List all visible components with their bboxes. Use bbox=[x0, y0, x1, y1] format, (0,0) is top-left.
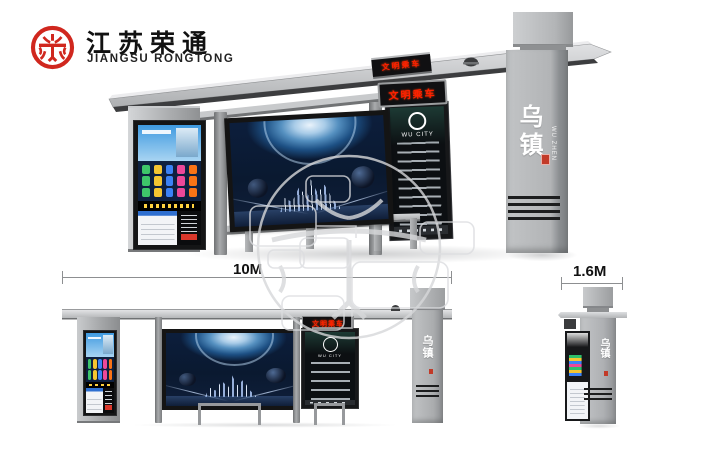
pillar-name-chinese: 乌镇 bbox=[514, 104, 544, 182]
side-shadow bbox=[568, 422, 630, 430]
brand-emblem-icon bbox=[30, 25, 75, 70]
front-dimension-line bbox=[62, 277, 452, 278]
route-panel-brand: WU CITY bbox=[401, 131, 434, 138]
dimension-tick bbox=[561, 277, 562, 290]
ad-lightbox bbox=[224, 110, 394, 232]
pillar-name-english: WU ZHEN bbox=[546, 126, 556, 178]
app-icon-grid bbox=[138, 161, 201, 201]
elevation-roof bbox=[62, 310, 452, 318]
front-led-text: 文明乘车 bbox=[379, 81, 445, 105]
elevation-post bbox=[155, 317, 162, 423]
side-elevation-view: 1.6M 乌镇 bbox=[550, 255, 726, 450]
weather-widget bbox=[138, 125, 201, 161]
side-pillar-stripes bbox=[584, 388, 612, 403]
dimension-tick bbox=[622, 277, 623, 290]
elevation-kiosk-screen bbox=[84, 331, 116, 415]
dimension-tick bbox=[451, 271, 452, 284]
pillar-stripes bbox=[508, 196, 560, 221]
dimension-tick bbox=[62, 271, 63, 284]
cctv-camera-icon bbox=[391, 305, 400, 311]
red-seal-icon bbox=[604, 371, 608, 376]
side-kiosk-screen bbox=[567, 333, 588, 380]
front-elevation-view: 10M 文明乘车 WU CITY 乌镇 bbox=[55, 255, 457, 435]
ad-artwork bbox=[229, 115, 388, 227]
brand-logo: 江苏荣通 JIANGSU RONGTONG bbox=[0, 0, 260, 85]
side-dimension-label: 1.6M bbox=[573, 263, 606, 280]
elevation-shadow bbox=[75, 421, 455, 429]
schedule-sheet bbox=[138, 211, 177, 245]
elevation-route-brand: WU CITY bbox=[318, 353, 342, 358]
kiosk-screen-content bbox=[138, 125, 201, 245]
brand-name-english: JIANGSU RONGTONG bbox=[87, 53, 234, 65]
elevation-route-panel: WU CITY bbox=[302, 329, 358, 408]
elevation-post bbox=[293, 317, 300, 423]
side-dimension-line bbox=[561, 283, 623, 284]
side-kiosk bbox=[565, 331, 590, 421]
elevation-bench bbox=[198, 403, 261, 425]
kiosk-screen bbox=[134, 121, 205, 249]
side-pillar-cap bbox=[583, 287, 613, 308]
info-sidebar bbox=[177, 211, 201, 245]
pillar-cap bbox=[513, 12, 573, 47]
route-footer bbox=[394, 225, 448, 236]
planet-icon bbox=[248, 178, 269, 198]
side-led-box bbox=[564, 319, 576, 329]
bench-leg bbox=[410, 218, 417, 249]
front-led-sign: 文明乘车 bbox=[377, 79, 447, 108]
elevation-pillar-cap bbox=[410, 288, 445, 310]
ticker-bar bbox=[138, 201, 201, 211]
wu-city-logo-icon bbox=[323, 337, 338, 352]
elevation-bench bbox=[314, 403, 345, 425]
bench-leg bbox=[374, 220, 381, 251]
elevation-pillar-stripes bbox=[416, 385, 439, 400]
red-seal-icon bbox=[541, 154, 550, 165]
front-dimension-label: 10M bbox=[233, 261, 262, 278]
elevation-ad-lightbox bbox=[162, 329, 300, 410]
red-seal-icon bbox=[429, 369, 433, 374]
planet-icon bbox=[350, 166, 374, 189]
